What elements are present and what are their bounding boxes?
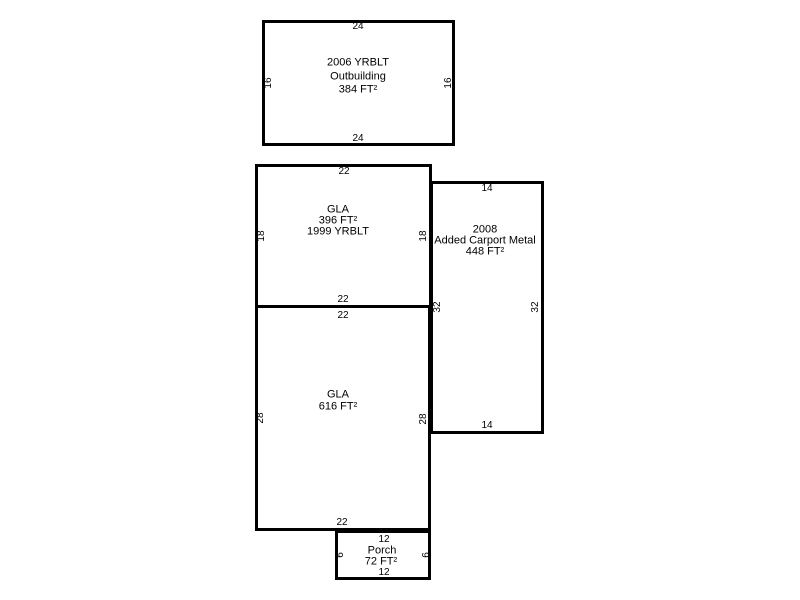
gla-lower-label-area: 616 FT² xyxy=(319,402,358,413)
gla-lower-dim-top: 22 xyxy=(337,311,348,321)
porch-label-area: 72 FT² xyxy=(365,557,397,568)
gla-upper-dim-left: 18 xyxy=(257,230,267,241)
gla-lower-dim-bottom: 22 xyxy=(336,518,347,528)
gla-upper-dim-bottom: 22 xyxy=(337,295,348,305)
porch-dim-right: 6 xyxy=(422,552,432,558)
carport-dim-top: 14 xyxy=(481,184,492,194)
outbuilding-label-year: 2006 YRBLT xyxy=(327,58,389,69)
carport-dim-right: 32 xyxy=(531,301,541,312)
gla-upper-dim-top: 22 xyxy=(338,167,349,177)
outbuilding-dim-left: 16 xyxy=(264,77,274,88)
porch-dim-left: 6 xyxy=(336,552,346,558)
gla-upper-label-year: 1999 YRBLT xyxy=(307,227,369,238)
carport-dim-bottom: 14 xyxy=(481,421,492,431)
gla-lower-outline xyxy=(255,305,431,531)
outbuilding-dim-top: 24 xyxy=(352,22,363,32)
porch-dim-bottom: 12 xyxy=(378,568,389,578)
carport-outline xyxy=(430,181,544,434)
outbuilding-dim-right: 16 xyxy=(444,77,454,88)
outbuilding-dim-bottom: 24 xyxy=(352,134,363,144)
carport-label-area: 448 FT² xyxy=(466,247,505,258)
carport-dim-left: 32 xyxy=(433,301,443,312)
gla-lower-dim-left: 28 xyxy=(256,412,266,423)
gla-upper-dim-right: 18 xyxy=(419,230,429,241)
outbuilding-label-type: Outbuilding xyxy=(330,72,386,83)
gla-lower-dim-right: 28 xyxy=(419,413,429,424)
sketch-canvas: 24 24 16 16 2006 YRBLT Outbuilding 384 F… xyxy=(0,0,800,600)
outbuilding-label-area: 384 FT² xyxy=(339,85,378,96)
porch-dim-top: 12 xyxy=(378,535,389,545)
gla-lower-label-name: GLA xyxy=(327,390,349,401)
